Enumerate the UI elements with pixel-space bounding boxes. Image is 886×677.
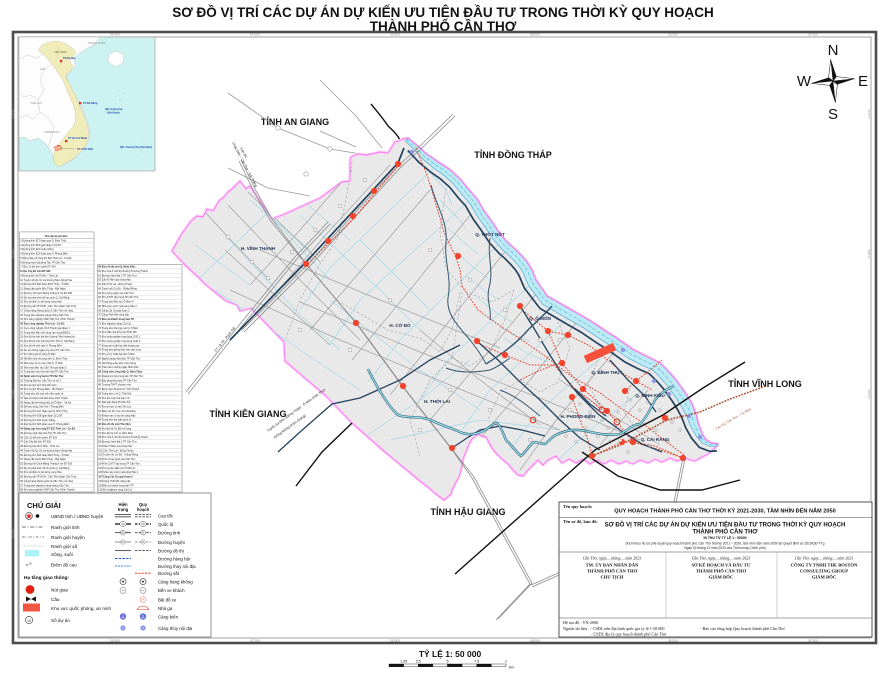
svg-text:22 Trung tâm đầu mối nông sả: 22 Trung tâm đầu mối nông sản vùng ĐBSCL <box>20 331 71 334</box>
svg-text:114100: 114100 <box>867 109 871 119</box>
svg-text:Tên sơ đồ, bản đồ:: Tên sơ đồ, bản đồ: <box>563 519 598 524</box>
svg-text:6 Đường vành đai phía Tây TP: 6 Đường vành đai phía Tây TP Cần Thơ <box>20 261 65 264</box>
svg-text:89 Khu liên hợp thể thao TP: 89 Khu liên hợp thể thao TP <box>98 397 130 400</box>
svg-text:80 Nghĩa trang nhân dân TP C: 80 Nghĩa trang nhân dân TP Cần Thơ <box>98 357 140 360</box>
svg-text:TP Hồ Chí Minh: TP Hồ Chí Minh <box>68 136 88 140</box>
svg-text:43 Đường tỉnh 923 đoạn qua H: 43 Đường tỉnh 923 đoạn qua H. Phong Điền <box>20 423 70 426</box>
svg-text:GIÁM ĐỐC: GIÁM ĐỐC <box>812 575 836 580</box>
svg-text:Khu vực quốc phòng, an ninh: Khu vực quốc phòng, an ninh <box>51 606 111 611</box>
svg-text:30 Nhà máy điện rác Cần Thơ: 30 Nhà máy điện rác Cần Thơ giai đoạn 2 <box>20 366 67 369</box>
svg-text:Nhà ga: Nhà ga <box>158 606 173 611</box>
svg-text:88 Trung tâm y tế Q. Thốt Nố: 88 Trung tâm y tế Q. Thốt Nốt <box>98 392 131 395</box>
svg-text:Hệ tọa độ : VN-2000: Hệ tọa độ : VN-2000 <box>563 620 598 625</box>
svg-text:TỈNH ĐỒNG THÁP: TỈNH ĐỒNG THÁP <box>474 149 552 160</box>
svg-text:34 Khu du lịch sinh thái Cồn: 34 Khu du lịch sinh thái Cồn Sơn <box>20 384 57 387</box>
svg-text:42 Đường tỉnh 921 tuyến thẳn: 42 Đường tỉnh 921 tuyến thẳng <box>20 419 55 422</box>
svg-text:26 Dự án chống ngập úng nội: 26 Dự án chống ngập úng nội ô TP Cần Thơ <box>20 349 70 352</box>
svg-text:33 Trường Đại học Cần Thơ cơ: 33 Trường Đại học Cần Thơ cơ sở 2 <box>20 379 61 382</box>
svg-text:31 Trung tâm văn hóa thể tha: 31 Trung tâm văn hóa thể thao TP Cần Thơ <box>20 371 69 374</box>
svg-text:57 Trung tâm logistics hàng: 57 Trung tâm logistics hàng không Cần Th… <box>20 484 69 487</box>
svg-text:Ngày 02 tháng 12 năm 2023 của: Ngày 02 tháng 12 năm 2023 của Thủ tướng … <box>684 546 765 550</box>
svg-text:46 Cầu Cờ Đỏ trên tuyến ĐT 9: 46 Cầu Cờ Đỏ trên tuyến ĐT 919 <box>20 436 57 439</box>
svg-text:73 Trung tâm thương mại Q. Ô: 73 Trung tâm thương mại Q. Ô Môn <box>98 327 138 330</box>
svg-text:40 Đường tỉnh 917 đoạn qua Q: 40 Đường tỉnh 917 đoạn qua Q. Bình Thủy <box>20 410 68 413</box>
svg-text:51 Nâng cấp tuyến Bốn Tổng -: 51 Nâng cấp tuyến Bốn Tổng - Một Ngàn <box>20 458 66 461</box>
svg-text:60 Khu nhà ở xã hội phường T: 60 Khu nhà ở xã hội phường Thường Thạnh <box>98 270 148 273</box>
svg-text:S: S <box>828 106 838 123</box>
svg-text:N: N <box>828 42 839 59</box>
svg-text:107 Cảng Cái Cui giai đoạn 3: 107 Cảng Cái Cui giai đoạn 3 <box>98 476 133 479</box>
svg-text:7 Cầu Cờ Đỏ trên tuyến ĐT 91: 7 Cầu Cờ Đỏ trên tuyến ĐT 919 <box>20 266 56 269</box>
svg-text:582000: 582000 <box>110 639 120 643</box>
svg-text:54 Khu tái định cư phường Lo: 54 Khu tái định cư phường Long Hòa <box>20 471 62 474</box>
svg-text:1.25: 1.25 <box>400 660 407 664</box>
svg-text:100 Cầu Ô Môn qua sông Hậu: 100 Cầu Ô Môn qua sông Hậu <box>98 445 133 448</box>
svg-text:17 Cảng hàng không quốc tế C: 17 Cảng hàng không quốc tế Cần Thơ mở rộ… <box>20 309 73 312</box>
svg-text:H. VĨNH THẠNH: H. VĨNH THẠNH <box>241 245 276 251</box>
svg-text:- Báo cáo tổng hợp Quy hoạch t: - Báo cáo tổng hợp Quy hoạch thành phố C… <box>700 626 785 631</box>
svg-text:CHÚ GIẢI: CHÚ GIẢI <box>27 501 61 510</box>
svg-text:58 Khu công nghiệp VSIP Cần: 58 Khu công nghiệp VSIP Cần Thơ (Vĩnh Th… <box>20 489 74 492</box>
svg-text:CONSULTING GROUP: CONSULTING GROUP <box>800 569 848 574</box>
svg-text:Cao tốc: Cao tốc <box>158 513 174 518</box>
svg-text:45 Đường vành đai phía Tây T: 45 Đường vành đai phía Tây TP Cần Thơ <box>20 432 67 435</box>
svg-text:66 Khu CNTT tập trung TP Cần: 66 Khu CNTT tập trung TP Cần Thơ <box>98 296 138 299</box>
svg-text:21 Cụm công nghiệp Vĩnh Thạn: 21 Cụm công nghiệp Vĩnh Thạnh giai đoạn … <box>20 327 70 330</box>
svg-text:91 Khu du lịch cù lao Tân Lộ: 91 Khu du lịch cù lao Tân Lộc <box>98 406 132 409</box>
svg-text:114700: 114700 <box>11 529 15 539</box>
svg-text:TỈNH AN GIANG: TỈNH AN GIANG <box>261 116 329 127</box>
svg-text:114200: 114200 <box>11 389 15 399</box>
svg-text:81 Hệ thống quan trắc môi tr: 81 Hệ thống quan trắc môi trường <box>98 362 136 365</box>
svg-text:Bến xe khách: Bến xe khách <box>158 588 185 593</box>
svg-text:Bãi đỗ xe: Bãi đỗ xe <box>158 597 177 602</box>
svg-text:49 Tuyến nối QL 91 với đường: 49 Tuyến nối QL 91 với đường Nam Sông Hậ… <box>20 449 72 452</box>
svg-text:H. CỜ ĐỎ: H. CỜ ĐỎ <box>389 321 411 328</box>
svg-text:Cảng biển: Cảng biển <box>158 614 179 619</box>
svg-text:Đường đô thị: Đường đô thị <box>158 548 184 553</box>
svg-text:84 Quảng trường trung tâm TP: 84 Quảng trường trung tâm TP Cần Thơ <box>98 375 143 378</box>
svg-text:82 Trạm bơm chống ngập Ninh: 82 Trạm bơm chống ngập Ninh Kiều <box>98 366 139 369</box>
svg-text:108 Cảng Thốt Nốt nâng cấp: 108 Cảng Thốt Nốt nâng cấp <box>98 480 131 483</box>
svg-text:15 Khu tái định cư phường Lo: 15 Khu tái định cư phường Long Hòa <box>20 301 62 304</box>
svg-text:64 Tuyến nối Cờ Đỏ - Giồng R: 64 Tuyến nối Cờ Đỏ - Giồng Riềng <box>98 287 137 290</box>
svg-text:14 Dự án phát triển đô thị x: 14 Dự án phát triển đô thị xanh Q. Cái R… <box>20 296 70 299</box>
svg-text:109 Bến xe khách trung tâm T: 109 Bến xe khách trung tâm TP <box>98 484 133 487</box>
svg-text:QĐ. Trường Sa (Việt Nam): QĐ. Trường Sa (Việt Nam) <box>120 145 152 149</box>
svg-text:Nút giao: Nút giao <box>51 588 69 593</box>
svg-text:THÀNH PHỐ CẦN THƠ: THÀNH PHỐ CẦN THƠ <box>692 529 758 536</box>
svg-text:76 Khu nông nghiệp ứng dụng: 76 Khu nông nghiệp ứng dụng CNC 2 <box>98 340 141 343</box>
svg-text:587000: 587000 <box>808 639 818 643</box>
svg-text:85 Bảo tàng tổng hợp TP Cần: 85 Bảo tàng tổng hợp TP Cần Thơ <box>98 379 137 382</box>
svg-text:62 Cầu Ô Môn qua sông Hậu: 62 Cầu Ô Môn qua sông Hậu <box>98 279 131 282</box>
svg-text:Ranh giới xã: Ranh giới xã <box>51 544 77 549</box>
svg-text:(Việt Nam): (Việt Nam) <box>107 111 120 115</box>
svg-text:94 Trung tâm hội nghị quốc t: 94 Trung tâm hội nghị quốc tế <box>98 419 132 422</box>
svg-text:63 Cầu Thới Lai - Đông Thuận: 63 Cầu Thới Lai - Đông Thuận <box>98 283 132 286</box>
svg-text:19 Khu công nghiệp VSIP Cần: 19 Khu công nghiệp VSIP Cần Thơ (Vĩnh Th… <box>20 318 74 321</box>
svg-text:114600: 114600 <box>11 249 15 259</box>
svg-text:CÔNG TY TNHH THE BOSTON: CÔNG TY TNHH THE BOSTON <box>791 563 858 568</box>
svg-text:587000: 587000 <box>808 33 818 37</box>
svg-text:Q. Ô MÔN: Q. Ô MÔN <box>529 314 551 321</box>
svg-text:101 Cầu Thới Lai - Đông Thuậ: 101 Cầu Thới Lai - Đông Thuận <box>98 449 134 452</box>
svg-text:5: 5 <box>447 660 449 664</box>
svg-text:114600: 114600 <box>867 249 871 259</box>
svg-text:37 Nạo vét kênh Cái Sắn đoạn: 37 Nạo vét kênh Cái Sắn đoạn Vĩnh Thạnh <box>20 397 68 400</box>
svg-text:GIÁM ĐỐC: GIÁM ĐỐC <box>709 575 733 580</box>
svg-text:61 Đường Vành đai 2 TP Cần T: 61 Đường Vành đai 2 TP Cần Thơ <box>98 274 137 277</box>
svg-text:Cầu: Cầu <box>51 597 60 602</box>
svg-text:106 Nhà máy nước mặt sông Hậ: 106 Nhà máy nước mặt sông Hậu 2 <box>98 471 138 474</box>
svg-text:83 Công viên sông Hậu Q. Bìn: 83 Công viên sông Hậu Q. Bình Thủy <box>98 371 143 374</box>
svg-text:4 Đường tỉnh 923 đoạn qua H.: 4 Đường tỉnh 923 đoạn qua H. Phong Điền <box>20 253 68 256</box>
svg-text:69 Cảng Cái Cui giai đoạn 3: 69 Cảng Cái Cui giai đoạn 3 <box>98 309 130 312</box>
svg-text:20 Khu công nghiệp Thới Lai: 20 Khu công nghiệp Thới Lai - Cờ Đỏ <box>20 323 65 326</box>
svg-text:78 Trung tâm giống thủy sản: 78 Trung tâm giống thủy sản cấp vùng <box>98 349 141 352</box>
svg-text:9 Đường kết nối Ô Môn - Thới: 9 Đường kết nối Ô Môn - Thới Lai <box>20 274 58 277</box>
svg-text:27 Kè chống sạt lở sông Ô Mô: 27 Kè chống sạt lở sông Ô Môn <box>20 353 56 356</box>
svg-text:Ranh giới tỉnh: Ranh giới tỉnh <box>51 524 80 530</box>
svg-text:Điểm độ cao: Điểm độ cao <box>51 562 77 568</box>
svg-text:70 Cảng Thốt Nốt nâng cấp: 70 Cảng Thốt Nốt nâng cấp <box>98 314 129 317</box>
svg-text:Số dự án: Số dự án <box>51 618 70 623</box>
svg-text:UBND tỉnh / UBND huyện: UBND tỉnh / UBND huyện <box>51 513 104 519</box>
svg-text:87 Bệnh viện đa khoa H. Vĩnh: 87 Bệnh viện đa khoa H. Vĩnh Thạnh <box>98 388 140 391</box>
svg-text:583000: 583000 <box>390 33 400 37</box>
svg-text:W: W <box>797 73 812 90</box>
svg-text:68 Nhà máy nước mặt sông Hậu: 68 Nhà máy nước mặt sông Hậu 2 <box>98 305 137 308</box>
svg-text:Cảng hàng không: Cảng hàng không <box>158 579 193 584</box>
svg-text:IN THU TỪ TỶ LỆ 1 : 50000: IN THU TỪ TỶ LỆ 1 : 50000 <box>704 535 747 540</box>
svg-text:50 Đường tỉnh 920 đoạn Bình: 50 Đường tỉnh 920 đoạn Bình Thủy - Ô Môn <box>20 454 70 457</box>
svg-text:Q. THỐT NỐT: Q. THỐT NỐT <box>475 231 505 237</box>
svg-text:Cảng thủy nội địa: Cảng thủy nội địa <box>158 626 193 631</box>
svg-text:25 Khu đô thị sinh thái H. P: 25 Khu đô thị sinh thái H. Phong Điền <box>20 344 62 347</box>
svg-text:16 Đường sắt TP HCM - Cần Th: 16 Đường sắt TP HCM - Cần Thơ (đoạn Cần … <box>20 305 76 308</box>
svg-text:588000: 588000 <box>530 33 540 37</box>
svg-text:587000: 587000 <box>250 33 260 37</box>
svg-text:3 Đường tỉnh 921 tuyến thẳng: 3 Đường tỉnh 921 tuyến thẳng <box>20 248 54 251</box>
svg-text:29 Nhà máy xử lý nước thải Q: 29 Nhà máy xử lý nước thải Q. Ô Môn <box>20 362 63 365</box>
svg-text:TỈNH HẬU GIANG: TỈNH HẬU GIANG <box>431 506 506 517</box>
svg-text:LÀO: LÀO <box>40 67 45 71</box>
svg-text:TỈNH VĨNH LONG: TỈNH VĨNH LONG <box>728 378 802 389</box>
svg-text:Đường sắt: Đường sắt <box>158 571 180 576</box>
svg-text:2 Đường tỉnh 918 (giai đoạn: 2 Đường tỉnh 918 (giai đoạn 2) Q.BT <box>20 244 61 247</box>
svg-text:28 Hồ điều hòa và công viên: 28 Hồ điều hòa và công viên Q. Bình Thủy <box>20 358 68 361</box>
svg-text:74 Chợ đầu mối thủy sản Thốt: 74 Chợ đầu mối thủy sản Thốt Nốt <box>98 331 137 334</box>
svg-text:39 Đê bao sông Cần Thơ - Pho: 39 Đê bao sông Cần Thơ - Phong Điền <box>20 406 64 409</box>
svg-text:583000: 583000 <box>390 639 400 643</box>
svg-text:H. PHONG ĐIỀN: H. PHONG ĐIỀN <box>561 413 597 419</box>
svg-text:SỞ KẾ HOẠCH VÀ ĐẦU TƯ: SỞ KẾ HOẠCH VÀ ĐẦU TƯ <box>691 563 750 568</box>
svg-text:38 Nâng cấp hệ thống thủy lợ: 38 Nâng cấp hệ thống thủy lợi Ô Môn - Xà… <box>20 401 71 404</box>
svg-text:TỈNH KIÊN GIANG: TỈNH KIÊN GIANG <box>209 408 286 419</box>
svg-text:98 Khu nhà ở xã hội phường T: 98 Khu nhà ở xã hội phường Thường Thạnh <box>98 436 148 439</box>
svg-text:Quốc lộ: Quốc lộ <box>158 522 174 527</box>
svg-text:582000: 582000 <box>110 33 120 37</box>
svg-text:23 Khu đô thị mới hai bên đư: 23 Khu đô thị mới hai bên đường Trần Hoà… <box>20 336 75 339</box>
svg-text:trạng: trạng <box>118 507 129 512</box>
svg-text:1A: 1A <box>121 522 125 526</box>
svg-text:92 Điểm du lịch chợ nổi Cái: 92 Điểm du lịch chợ nổi Cái Răng <box>98 410 136 413</box>
svg-text:TM. ỦY BAN NHÂN DÂN: TM. ỦY BAN NHÂN DÂN <box>586 563 639 568</box>
svg-text:75 Khu nông nghiệp ứng dụng: 75 Khu nông nghiệp ứng dụng CNC 1 <box>98 336 141 339</box>
svg-text:Km: Km <box>509 666 514 670</box>
svg-text:hoạch: hoạch <box>137 507 150 512</box>
svg-text:Tên quy hoạch:: Tên quy hoạch: <box>563 504 593 509</box>
svg-text:15: 15 <box>29 562 33 566</box>
svg-text:Q. BÌNH THỦY: Q. BÌNH THỦY <box>591 368 622 375</box>
svg-text:Nguồn tài liệu : - CSDL nền đị: Nguồn tài liệu : - CSDL nền địa hình quố… <box>563 626 665 631</box>
svg-text:72 Khu logistics cảng Cái Cu: 72 Khu logistics cảng Cái Cui <box>98 322 131 325</box>
svg-text:86 Trường THPT chuyên mới: 86 Trường THPT chuyên mới <box>98 384 131 387</box>
svg-text:95 Khu đô thị mới Thốt Nốt: 95 Khu đô thị mới Thốt Nốt <box>98 423 130 426</box>
svg-text:Q. NINH KIỀU: Q. NINH KIỀU <box>635 392 665 398</box>
svg-text:TĐ Hà Nội: TĐ Hà Nội <box>63 56 76 60</box>
svg-text:CHỦ TỊCH: CHỦ TỊCH <box>600 575 623 580</box>
svg-text:THÁI LAN: THÁI LAN <box>30 101 42 105</box>
svg-text:48 Đường kết nối Ô Môn - Thớ: 48 Đường kết nối Ô Môn - Thới Lai <box>20 445 59 448</box>
svg-text:QUY HOẠCH THÀNH PHỐ CẦN THƠ TH: QUY HOẠCH THÀNH PHỐ CẦN THƠ THỜI KỲ 2021… <box>614 507 835 515</box>
svg-text:18 Trung tâm logistics hàng: 18 Trung tâm logistics hàng không Cần Th… <box>20 314 69 317</box>
svg-text:114200: 114200 <box>867 389 871 399</box>
svg-text:582000: 582000 <box>668 33 678 37</box>
svg-text:99 Đường Vành đai 2 TP Cần T: 99 Đường Vành đai 2 TP Cần Thơ <box>98 441 137 444</box>
svg-text:Đường hàng hải: Đường hàng hải <box>158 556 190 561</box>
svg-text:77 Vùng sản xuất lúa chất lư: 77 Vùng sản xuất lúa chất lượng cao <box>98 344 140 347</box>
svg-text:587000: 587000 <box>250 639 260 643</box>
svg-text:56 Cảng hàng không quốc tế C: 56 Cảng hàng không quốc tế Cần Thơ mở rộ… <box>20 480 73 483</box>
svg-text:1 Đường tỉnh 917 đoạn qua Q.: 1 Đường tỉnh 917 đoạn qua Q. Bình Thủy <box>20 240 67 243</box>
svg-text:5 Nâng cấp mở rộng ĐT 922 Th: 5 Nâng cấp mở rộng ĐT 922 Thới Lai - Cờ … <box>20 257 72 260</box>
svg-text:11 Đường tỉnh 920 đoạn Bình: 11 Đường tỉnh 920 đoạn Bình Thủy - Ô Môn <box>20 283 69 286</box>
svg-text:13 Đường nối Cách Mạng Tháng: 13 Đường nối Cách Mạng Tháng 8 với ĐT 91… <box>20 292 72 295</box>
svg-text:15: 15 <box>27 619 31 623</box>
svg-text:1A: 1A <box>141 522 145 526</box>
svg-text:102 Tuyến nối Cờ Đỏ - Giồng: 102 Tuyến nối Cờ Đỏ - Giồng Riềng <box>98 454 138 457</box>
svg-text:47 Cầu Tây Đô trên ĐT 926: 47 Cầu Tây Đô trên ĐT 926 <box>20 441 51 444</box>
svg-text:E: E <box>858 73 868 90</box>
svg-text:Ranh giới huyện: Ranh giới huyện <box>51 535 85 540</box>
svg-text:TP CẦN THƠ: TP CẦN THƠ <box>77 147 94 151</box>
svg-text:24 Khu đô thị mới phường Phú: 24 Khu đô thị mới phường Phú Thứ Q. Cái … <box>20 340 75 343</box>
svg-text:7.5: 7.5 <box>474 660 479 664</box>
svg-text:10 Tuyến nối QL 91 với đường: 10 Tuyến nối QL 91 với đường Nam Sông Hậ… <box>20 279 72 282</box>
svg-text:8 Cầu Tây Đô trên ĐT 926: 8 Cầu Tây Đô trên ĐT 926 <box>20 270 51 273</box>
svg-text:(Kèm theo hồ sơ phê duyệt quy: (Kèm theo hồ sơ phê duyệt quy hoạch thàn… <box>626 542 825 546</box>
svg-text:65 Khu công nghệ cao Cần Thơ: 65 Khu công nghệ cao Cần Thơ <box>98 292 134 295</box>
svg-text:12 Nâng cấp tuyến Bốn Tổng -: 12 Nâng cấp tuyến Bốn Tổng - Một Ngàn <box>20 288 66 291</box>
svg-text:52 Đường nối Cách Mạng Tháng: 52 Đường nối Cách Mạng Tháng 8 với ĐT 91… <box>20 462 72 465</box>
svg-text:1: 1 <box>505 660 507 664</box>
svg-text:SƠ ĐỒ VỊ TRÍ CÁC DỰ ÁN DỰ KIẾN: SƠ ĐỒ VỊ TRÍ CÁC DỰ ÁN DỰ KIẾN ƯU TIÊN Đ… <box>605 521 846 529</box>
svg-text:QĐ. Hoàng Sa: QĐ. Hoàng Sa <box>105 107 123 111</box>
svg-text:53 Dự án phát triển đô thị x: 53 Dự án phát triển đô thị xanh Q. Cái R… <box>20 467 70 470</box>
svg-text:Đường thủy nội địa: Đường thủy nội địa <box>158 564 196 569</box>
svg-text:55 Đường sắt TP HCM - Cần Th: 55 Đường sắt TP HCM - Cần Thơ (đoạn Cần … <box>20 476 76 479</box>
svg-text:Sông, suối: Sông, suối <box>51 552 73 557</box>
svg-text:588000: 588000 <box>530 639 540 643</box>
svg-text:36 Trung tâm hội chợ triển l: 36 Trung tâm hội chợ triển lãm quốc tế <box>20 393 64 396</box>
svg-text:THÀNH PHỐ CẦN THƠ: THÀNH PHỐ CẦN THƠ <box>587 569 638 574</box>
svg-text:96 Khu đô thị Cờ Đỏ mở rộng: 96 Khu đô thị Cờ Đỏ mở rộng <box>98 427 131 430</box>
svg-text:582000: 582000 <box>668 639 678 643</box>
svg-text:2.5: 2.5 <box>416 660 421 664</box>
svg-text:41 Đường tỉnh 918 (giai đoạn: 41 Đường tỉnh 918 (giai đoạn 2) Q.BT <box>20 414 63 417</box>
svg-text:TỶ LỆ 1: 50 000: TỶ LỆ 1: 50 000 <box>419 648 482 659</box>
svg-text:- CSDL địa lý quy hoạch thành: - CSDL địa lý quy hoạch thành phố Cần Th… <box>591 632 667 637</box>
svg-text:71 Bến xe khách trung tâm TP: 71 Bến xe khách trung tâm TP <box>98 318 134 321</box>
svg-text:Tên dự án ưu tiên: Tên dự án ưu tiên <box>45 234 68 238</box>
svg-text:Q. CÁI RĂNG: Q. CÁI RĂNG <box>641 436 670 442</box>
svg-text:67 Trung tâm điện lực Ô Môn: 67 Trung tâm điện lực Ô Môn IV <box>98 301 134 304</box>
svg-text:93 Khách sạn 5 sao bờ sông H: 93 Khách sạn 5 sao bờ sông Hậu <box>98 414 136 417</box>
svg-text:35 Khu du lịch Phong Điền -: 35 Khu du lịch Phong Điền - Mỹ Khánh <box>20 388 64 391</box>
svg-text:104 Khu CNTT tập trung TP Cầ: 104 Khu CNTT tập trung TP Cần Thơ <box>98 462 140 465</box>
svg-text:97 Khu đô thị mới Q. Ninh Ki: 97 Khu đô thị mới Q. Ninh Kiều <box>98 432 133 435</box>
svg-text:103 Khu công nghệ cao Cần Th: 103 Khu công nghệ cao Cần Thơ <box>98 458 135 461</box>
svg-text:90 Sân vận động 50.000 chỗ: 90 Sân vận động 50.000 chỗ <box>98 401 131 404</box>
svg-text:THÀNH PHỐ CẦN THƠ: THÀNH PHỐ CẦN THƠ <box>696 569 747 574</box>
svg-text:79 Khu xử lý chất thải rắn Ô: 79 Khu xử lý chất thải rắn Ô Môn <box>98 353 135 356</box>
svg-text:44 Nâng cấp mở rộng ĐT 922 T: 44 Nâng cấp mở rộng ĐT 922 Thới Lai - Cờ… <box>20 428 75 431</box>
svg-text:H. THỚI LAI: H. THỚI LAI <box>424 397 450 404</box>
svg-text:32 Bệnh viện Ung bướu TP Cần: 32 Bệnh viện Ung bướu TP Cần Thơ <box>20 375 63 378</box>
svg-text:SƠ ĐỒ VỊ TRÍ CÁC DỰ ÁN DỰ KIẾN: SƠ ĐỒ VỊ TRÍ CÁC DỰ ÁN DỰ KIẾN ƯU TIÊN Đ… <box>172 5 714 20</box>
svg-text:Hạ tầng giao thông:: Hạ tầng giao thông: <box>24 575 69 581</box>
svg-text:CAMPUCHIA: CAMPUCHIA <box>44 130 60 134</box>
svg-text:59 Khu đô thị mới Q. Ninh Ki: 59 Khu đô thị mới Q. Ninh Kiều <box>98 266 135 269</box>
svg-text:105 Trung tâm điện lực Ô Môn: 105 Trung tâm điện lực Ô Môn IV <box>98 467 135 470</box>
svg-text:Đường huyện: Đường huyện <box>158 540 186 545</box>
svg-text:Đường tỉnh: Đường tỉnh <box>158 530 181 535</box>
svg-text:114100: 114100 <box>11 109 15 119</box>
svg-text:110 Khu logistics cảng Cái C: 110 Khu logistics cảng Cái Cui <box>98 489 132 492</box>
